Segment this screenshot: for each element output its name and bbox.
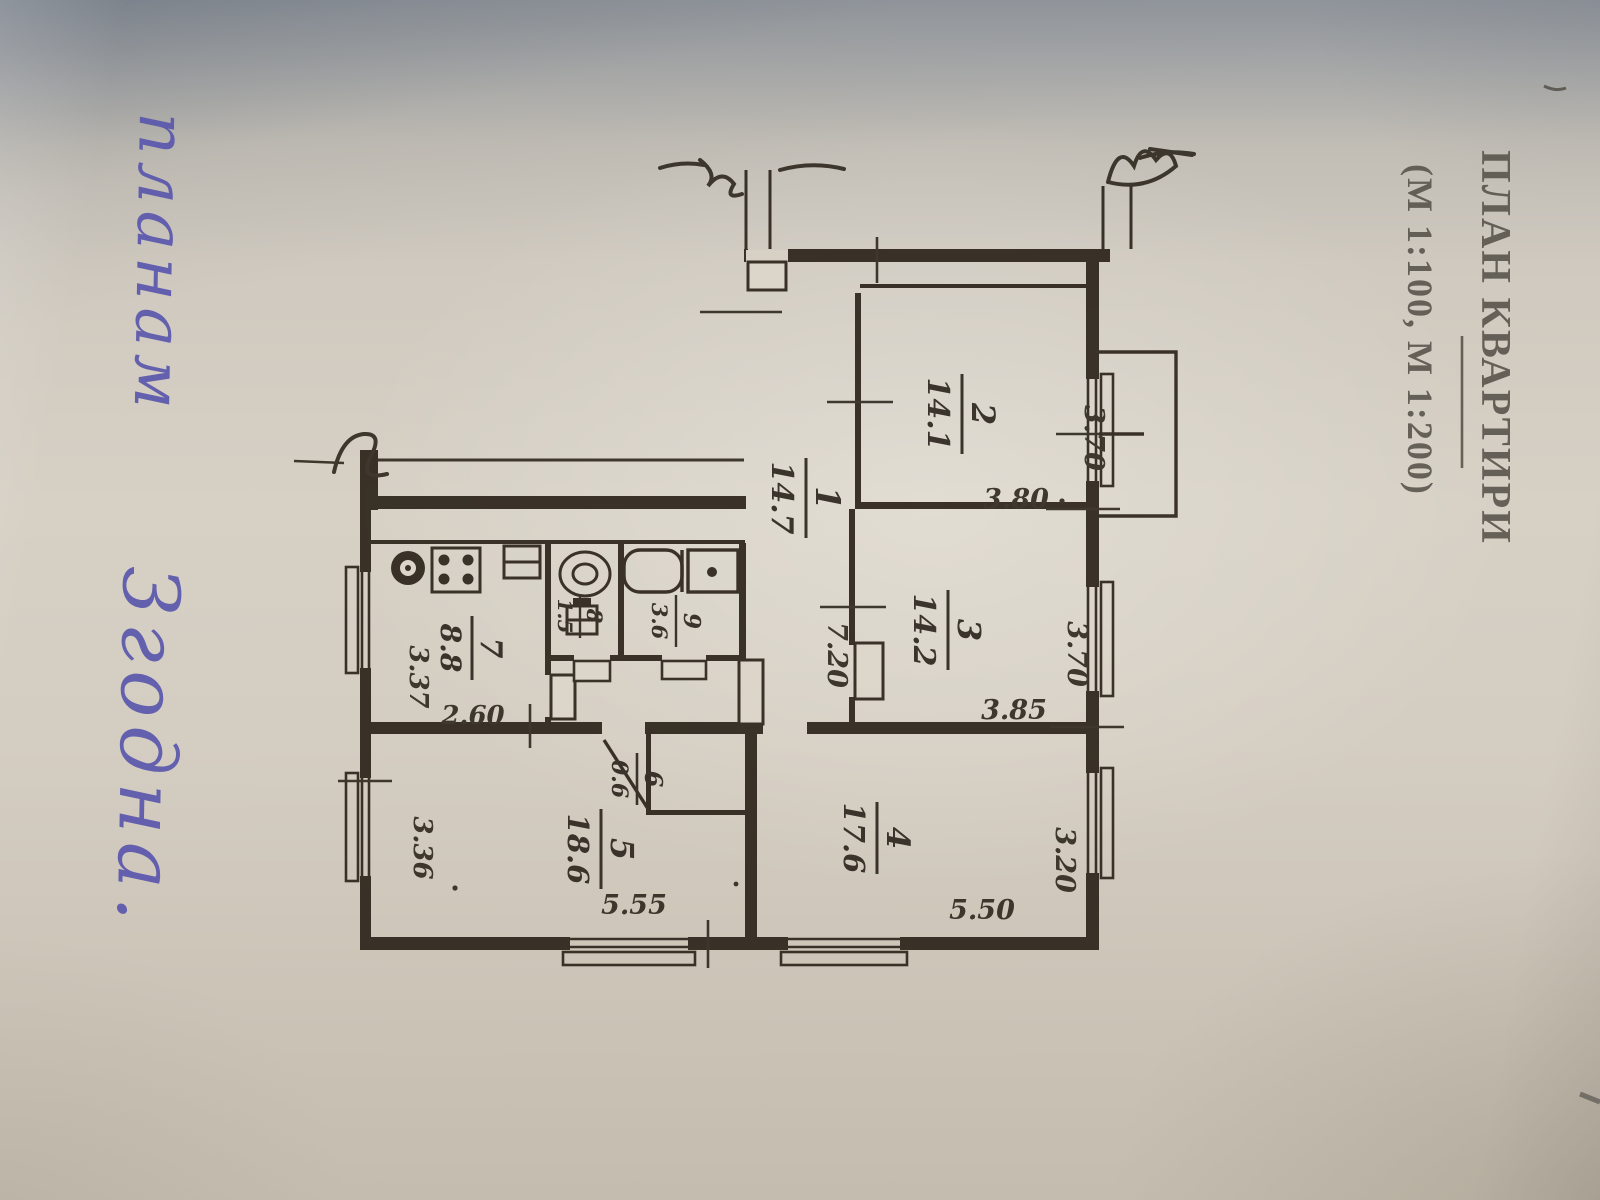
bath-door-leaf xyxy=(662,661,706,679)
room-area: 14.7 xyxy=(764,461,799,534)
room-number: 8 xyxy=(582,608,607,624)
dim-kitchen-depth: 2.60 xyxy=(440,701,504,731)
floor-plan-drawing: 1 14.7 2 14.1 3 14.2 4 17.6 5 18.6 6 0.6 xyxy=(294,149,1194,968)
bath-basin-icon xyxy=(688,550,738,592)
walls xyxy=(360,249,1110,950)
floor-plan-photo: 1 14.7 2 14.1 3 14.2 4 17.6 5 18.6 6 0.6 xyxy=(0,0,1600,1200)
room-number: 2 xyxy=(964,402,1002,425)
handwritten-note: планам Згодна. xyxy=(99,112,201,931)
room-label-9: 9 3.6 xyxy=(647,595,705,647)
washbasin-icon xyxy=(560,552,610,596)
room-number: 3 xyxy=(950,619,988,641)
room-area: 3.6 xyxy=(647,603,672,640)
dim-room3-width: 3.70 xyxy=(1061,621,1092,687)
entrance-duct xyxy=(746,170,1131,249)
ink-dot xyxy=(734,882,739,887)
ink-dot xyxy=(1059,498,1064,503)
handwritten-word-2: Згодна. xyxy=(99,566,195,931)
balcony xyxy=(1099,352,1176,516)
room-label-1: 1 14.7 xyxy=(764,458,847,538)
dim-room5-width: 3.36 xyxy=(407,816,437,879)
photographed-document: 1 14.7 2 14.1 3 14.2 4 17.6 5 18.6 6 0.6 xyxy=(0,0,1600,1200)
dim-kitchen-width: 3.37 xyxy=(403,645,433,708)
room-number: 4 xyxy=(879,827,917,849)
page-subtitle: (М 1:100, М 1:200) xyxy=(1400,164,1440,496)
room-number: 7 xyxy=(473,638,508,659)
room-label-5: 5 18.6 xyxy=(561,809,641,889)
dim-room5-length: 5.55 xyxy=(601,890,667,921)
dim-room4-width: 3.20 xyxy=(1049,827,1080,893)
ink-dot xyxy=(452,885,457,890)
dim-room2-width: 3.70 xyxy=(1078,405,1109,471)
wc-door-leaf xyxy=(574,661,610,681)
room-area: 0.6 xyxy=(606,760,632,798)
room-label-4: 4 17.6 xyxy=(837,802,917,874)
dim-room2-depth: 3.80 xyxy=(983,484,1049,515)
title-block: ПЛАН КВАРТИРИ (М 1:100, М 1:200) xyxy=(1400,86,1600,1102)
room-number: 6 xyxy=(639,771,668,788)
room-number: 1 xyxy=(807,486,847,510)
room3-door-leaf xyxy=(855,643,883,699)
room-area: 14.2 xyxy=(906,593,941,666)
kitchen-door-leaf xyxy=(551,675,575,719)
room-label-2: 2 14.1 xyxy=(920,374,1002,454)
room-area: 14.1 xyxy=(920,377,955,450)
entrance-mark-knot xyxy=(700,160,742,196)
room-area: 8.8 xyxy=(434,623,467,673)
stove-icon xyxy=(432,548,480,592)
bathtub-icon xyxy=(624,550,682,592)
room4-door-leaf xyxy=(739,660,763,724)
dim-room4-length: 5.50 xyxy=(949,895,1015,926)
room-area: 18.6 xyxy=(561,814,595,885)
edge-mark-bottom xyxy=(1580,1094,1600,1102)
entrance-mark-right xyxy=(780,165,844,170)
room-label-3: 3 14.2 xyxy=(906,590,988,670)
room-label-7: 7 8.8 xyxy=(434,616,508,680)
kitchen-counter-icon xyxy=(504,546,540,578)
handwritten-word-1: планам xyxy=(119,112,201,417)
kitchen-sink-icon xyxy=(391,551,425,585)
room-area: 1.5 xyxy=(553,599,577,634)
entrance-mark-left xyxy=(660,164,704,168)
room-number: 5 xyxy=(603,838,641,860)
room-area: 17.6 xyxy=(837,803,871,874)
room-label-8: 8 1.5 xyxy=(553,594,607,638)
edge-mark-top xyxy=(1544,86,1566,90)
entrance-door-leaf xyxy=(748,262,786,290)
room-number: 9 xyxy=(678,613,705,629)
dim-room3-depth: 3.85 xyxy=(981,695,1047,726)
page-title: ПЛАН КВАРТИРИ xyxy=(1472,150,1518,545)
dim-hall-length: 7.20 xyxy=(821,622,852,688)
room-label-6: 6 0.6 xyxy=(606,753,668,805)
